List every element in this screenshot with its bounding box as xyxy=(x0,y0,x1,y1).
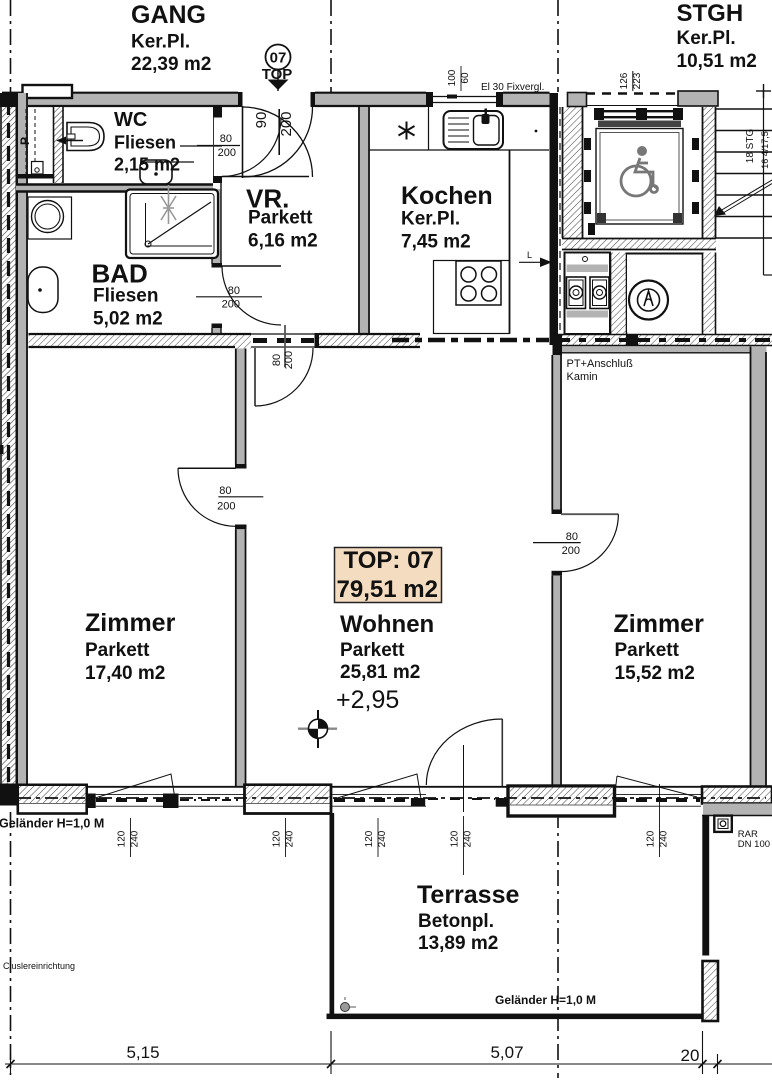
svg-text:Terrasse: Terrasse xyxy=(417,881,519,909)
svg-text:Geländer H=1,0 M: Geländer H=1,0 M xyxy=(495,993,596,1007)
svg-text:200: 200 xyxy=(217,501,235,513)
svg-text:GANG: GANG xyxy=(131,1,206,29)
svg-text:200: 200 xyxy=(283,351,295,369)
svg-text:80: 80 xyxy=(220,133,232,145)
svg-text:80: 80 xyxy=(271,354,283,366)
svg-text:Fliesen: Fliesen xyxy=(93,286,158,307)
svg-text:Zimmer: Zimmer xyxy=(85,609,176,637)
svg-text:6,16 m2: 6,16 m2 xyxy=(248,231,318,252)
svg-text:Zimmer: Zimmer xyxy=(614,610,705,638)
svg-text:80: 80 xyxy=(228,285,240,297)
svg-text:Geländer H=1,0 M: Geländer H=1,0 M xyxy=(0,817,104,831)
svg-text:240: 240 xyxy=(463,830,474,847)
svg-text:200: 200 xyxy=(218,147,236,159)
svg-text:Fliesen: Fliesen xyxy=(114,133,176,153)
svg-text:60: 60 xyxy=(460,72,471,84)
svg-text:Ker.Pl.: Ker.Pl. xyxy=(131,32,190,53)
svg-text:240: 240 xyxy=(659,830,670,847)
svg-text:17,40 m2: 17,40 m2 xyxy=(85,663,165,684)
svg-text:Cluslereinrichtung: Cluslereinrichtung xyxy=(3,961,75,971)
svg-text:90: 90 xyxy=(253,112,270,129)
svg-text:2,15 m2: 2,15 m2 xyxy=(114,155,180,175)
svg-text:10,51 m2: 10,51 m2 xyxy=(677,51,757,72)
svg-text:100: 100 xyxy=(447,69,458,86)
svg-text:80: 80 xyxy=(566,531,578,543)
svg-text:223: 223 xyxy=(632,72,643,89)
svg-text:07: 07 xyxy=(270,50,287,67)
svg-text:22,39 m2: 22,39 m2 xyxy=(131,54,211,75)
svg-text:200: 200 xyxy=(222,299,240,311)
svg-text:200: 200 xyxy=(562,545,580,557)
svg-text:120: 120 xyxy=(117,830,128,847)
svg-text:+2,95: +2,95 xyxy=(336,686,399,714)
svg-text:120: 120 xyxy=(364,830,375,847)
svg-text:El 30 Fixvergl.: El 30 Fixvergl. xyxy=(481,82,544,93)
svg-text:STGH: STGH xyxy=(677,0,744,27)
svg-text:Parkett: Parkett xyxy=(248,208,313,229)
svg-text:240: 240 xyxy=(285,830,296,847)
svg-text:15,52 m2: 15,52 m2 xyxy=(615,663,695,684)
svg-text:126: 126 xyxy=(619,72,630,89)
svg-text:120: 120 xyxy=(450,830,461,847)
svg-text:L: L xyxy=(527,250,532,260)
svg-text:5,15: 5,15 xyxy=(126,1043,159,1062)
svg-text:Parkett: Parkett xyxy=(615,640,680,661)
svg-text:BAD: BAD xyxy=(92,259,148,289)
svg-text:20: 20 xyxy=(681,1046,700,1065)
svg-text:Wohnen: Wohnen xyxy=(340,611,434,638)
svg-text:240: 240 xyxy=(377,830,388,847)
svg-text:7,45 m2: 7,45 m2 xyxy=(401,232,471,253)
svg-text:5,07: 5,07 xyxy=(490,1043,523,1062)
svg-text:13,89 m2: 13,89 m2 xyxy=(418,933,498,954)
svg-text:Kochen: Kochen xyxy=(401,182,493,210)
svg-text:Parkett: Parkett xyxy=(85,640,150,661)
svg-text:Betonpl.: Betonpl. xyxy=(418,911,494,932)
svg-text:120: 120 xyxy=(646,830,657,847)
svg-text:25,81 m2: 25,81 m2 xyxy=(340,662,420,683)
svg-text:5,02 m2: 5,02 m2 xyxy=(93,309,163,330)
svg-text:Kamin: Kamin xyxy=(567,371,598,383)
svg-text:WC: WC xyxy=(114,109,147,131)
svg-text:16 4/17,5: 16 4/17,5 xyxy=(760,131,770,169)
svg-text:TOP: 07: TOP: 07 xyxy=(344,547,434,574)
svg-text:80: 80 xyxy=(219,485,231,497)
svg-text:Ker.Pl.: Ker.Pl. xyxy=(677,28,736,49)
svg-text:P: P xyxy=(18,137,32,145)
svg-text:120: 120 xyxy=(272,830,283,847)
svg-text:DN 100: DN 100 xyxy=(738,839,770,850)
svg-text:240: 240 xyxy=(130,830,141,847)
svg-text:18 STG: 18 STG xyxy=(745,129,756,164)
svg-text:PT+Anschluß: PT+Anschluß xyxy=(567,358,634,370)
svg-text:Ker.Pl.: Ker.Pl. xyxy=(401,209,460,230)
svg-text:Parkett: Parkett xyxy=(340,640,405,661)
svg-text:79,51 m2: 79,51 m2 xyxy=(337,576,438,603)
